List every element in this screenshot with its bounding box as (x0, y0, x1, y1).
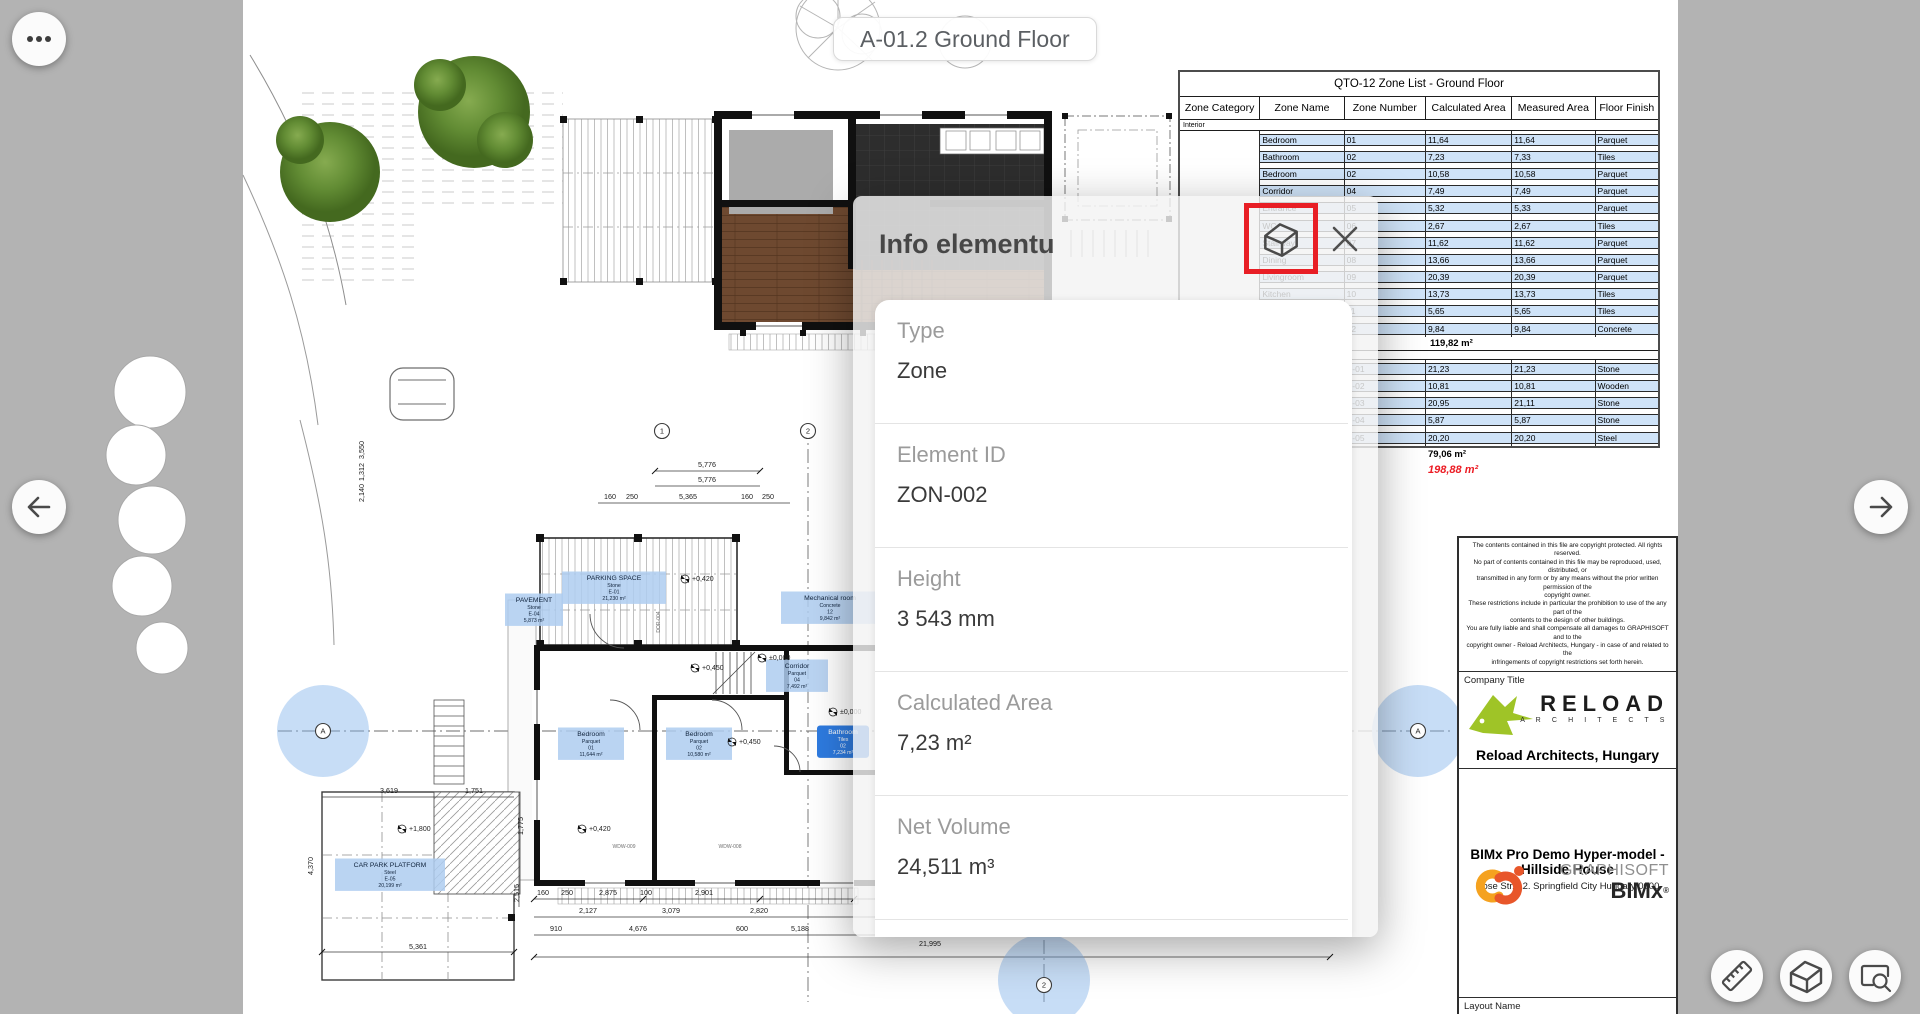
svg-text:5,873 m²: 5,873 m² (524, 618, 545, 624)
svg-text:5,361: 5,361 (409, 942, 427, 951)
svg-text:5,365: 5,365 (679, 492, 697, 501)
screen-search-icon (1853, 954, 1897, 998)
property-label: Element ID (897, 424, 1348, 468)
svg-text:3,079: 3,079 (662, 906, 680, 915)
svg-text:Parquet: Parquet (788, 671, 807, 677)
svg-text:21,230 m²: 21,230 m² (602, 596, 626, 602)
svg-text:160: 160 (537, 888, 549, 897)
info-property-row: Element IDZON-002 (875, 424, 1348, 548)
company-name: Reload Architects, Hungary (1459, 747, 1676, 763)
info-property-row: Height3 543 mm (875, 548, 1348, 672)
svg-text:Parquet: Parquet (582, 739, 601, 745)
svg-text:160: 160 (604, 492, 616, 501)
grid-marker: A (1411, 724, 1426, 739)
grid-marker: 1 (655, 424, 670, 439)
qto-column-header: Measured Area (1511, 97, 1594, 119)
zone-stamp[interactable]: PARKING SPACEStoneE-0121,230 m² (562, 572, 666, 604)
svg-text:2,875: 2,875 (599, 888, 617, 897)
reload-logo-wordmark: RELOAD (1520, 693, 1669, 715)
zone-stamp[interactable]: BedroomParquet0210,580 m² (666, 728, 732, 760)
svg-text:1,751: 1,751 (465, 786, 483, 795)
svg-text:Parquet: Parquet (690, 739, 709, 745)
svg-text:2,127: 2,127 (579, 906, 597, 915)
svg-text:02: 02 (696, 746, 702, 752)
title-block: The contents contained in this file are … (1457, 536, 1678, 1014)
ellipsis-icon (17, 17, 61, 61)
svg-text:A: A (320, 727, 325, 736)
svg-text:250: 250 (626, 492, 638, 501)
svg-text:04: 04 (794, 678, 800, 684)
layout-name-label: Layout Name (1459, 998, 1676, 1012)
svg-text:3,619: 3,619 (380, 786, 398, 795)
svg-text:Stone: Stone (607, 583, 621, 589)
property-label: Height (897, 548, 1348, 592)
svg-text:E-05: E-05 (385, 877, 396, 883)
zone-stamp[interactable]: CAR PARK PLATFORMSteelE-0520,199 m² (335, 859, 445, 891)
open-3d-model-button[interactable] (1780, 950, 1832, 1002)
svg-text:+0,450: +0,450 (739, 739, 761, 746)
measure-tool-button[interactable] (1711, 950, 1763, 1002)
close-icon (1328, 222, 1362, 256)
zone-stamp[interactable]: CorridorParquet047,492 m² (766, 660, 828, 692)
svg-text:+0,450: +0,450 (702, 665, 724, 672)
qto-section-interior: Interior (1180, 120, 1658, 131)
previous-layout-button[interactable] (12, 480, 66, 534)
svg-text:7,492 m²: 7,492 m² (787, 684, 808, 690)
layout-title-text: A-01.2 Ground Floor (860, 26, 1070, 53)
svg-text:11,644 m²: 11,644 m² (580, 752, 603, 758)
qto-table-row: Bedroom0210,5810,58Parquet (1180, 165, 1658, 182)
property-value: 7,23 m² (897, 730, 1348, 756)
svg-text:DOR-004: DOR-004 (656, 611, 662, 632)
element-info-header: Info elementu (853, 196, 1378, 300)
bimx-viewer: PARKING SPACEStoneE-0121,230 m²Mechanica… (0, 0, 1920, 1014)
qto-table-row: Bedroom0111,6411,64Parquet (1180, 131, 1658, 148)
svg-text:910: 910 (550, 924, 562, 933)
property-value: 3 543 mm (897, 606, 1348, 632)
copyright-notice: The contents contained in this file are … (1459, 538, 1676, 671)
svg-text:250: 250 (561, 888, 573, 897)
grid-marker: 2 (801, 424, 816, 439)
svg-text:7,234 m²: 7,234 m² (833, 750, 854, 756)
panel-title: Info elementu (879, 229, 1055, 260)
qto-column-header: Floor Finish (1595, 97, 1658, 119)
next-layout-button[interactable] (1854, 480, 1908, 534)
svg-text:Bedroom: Bedroom (577, 731, 605, 738)
svg-text:Mechanical room: Mechanical room (804, 595, 856, 602)
svg-text:CAR PARK PLATFORM: CAR PARK PLATFORM (354, 862, 427, 869)
grid-marker: 2 (1037, 978, 1052, 993)
qto-column-header: Calculated Area (1425, 97, 1511, 119)
svg-text:A: A (1415, 727, 1420, 736)
svg-text:1,775: 1,775 (516, 817, 525, 835)
svg-text:2,515: 2,515 (512, 884, 521, 902)
property-label: Net Volume (897, 796, 1348, 840)
qto-column-header: Zone Name (1259, 97, 1343, 119)
house-3d-icon (1784, 954, 1828, 998)
element-info-card: TypeZoneElement IDZON-002Height3 543 mmC… (875, 300, 1352, 937)
svg-text:01: 01 (588, 746, 594, 752)
svg-text:160: 160 (741, 492, 753, 501)
menu-button[interactable] (12, 12, 66, 66)
element-info-panel: Info elementu TypeZoneElement IDZON-002H… (853, 196, 1378, 937)
arrow-right-icon (1859, 485, 1903, 529)
svg-text:Stone: Stone (527, 605, 541, 611)
reload-logo-subtext: A R C H I T E C T S (1520, 717, 1669, 724)
svg-text:4,676: 4,676 (629, 924, 647, 933)
svg-text:+0,420: +0,420 (589, 826, 611, 833)
svg-text:250: 250 (762, 492, 774, 501)
svg-text:PAVEMENT: PAVEMENT (516, 597, 552, 604)
svg-text:Corridor: Corridor (785, 663, 810, 670)
svg-text:WDW-009: WDW-009 (613, 844, 636, 850)
svg-text:02: 02 (840, 744, 846, 750)
info-property-row: Net Volume24,511 m³ (875, 796, 1348, 920)
svg-text:2,901: 2,901 (695, 888, 713, 897)
property-label: Type (897, 300, 1348, 344)
svg-text:Concrete: Concrete (819, 603, 840, 609)
house-3d-icon (1258, 216, 1304, 262)
svg-text:2: 2 (1042, 981, 1046, 990)
qto-table-row: Bathroom027,237,33Tiles (1180, 148, 1658, 165)
svg-text:100: 100 (640, 888, 652, 897)
layout-title-pill[interactable]: A-01.2 Ground Floor (833, 17, 1097, 61)
find-on-layout-button[interactable] (1849, 950, 1901, 1002)
info-property-row: Calculated Area7,23 m² (875, 672, 1348, 796)
zone-stamp[interactable]: PAVEMENTStoneE-045,873 m² (505, 594, 563, 626)
svg-text:1: 1 (660, 427, 664, 436)
qto-column-header: Zone Category (1180, 97, 1259, 119)
svg-text:2,140: 2,140 (357, 484, 366, 502)
zone-stamp[interactable]: BedroomParquet0111,644 m² (558, 728, 624, 760)
qto-column-header: Zone Number (1344, 97, 1425, 119)
svg-text:20,199 m²: 20,199 m² (378, 883, 402, 889)
property-value: ZON-002 (897, 482, 1348, 508)
svg-text:1,312: 1,312 (357, 463, 366, 481)
svg-text:10,580 m²: 10,580 m² (687, 752, 711, 758)
grid-marker: A (316, 724, 331, 739)
svg-text:+1,800: +1,800 (409, 826, 431, 833)
svg-text:2: 2 (806, 427, 810, 436)
svg-text:2,820: 2,820 (750, 906, 768, 915)
property-value: 24,511 m³ (897, 854, 1348, 880)
svg-text:E-01: E-01 (609, 590, 620, 596)
bimx-logo-icon (1469, 860, 1531, 916)
qto-table-title: QTO-12 Zone List - Ground Floor (1180, 72, 1658, 97)
arrow-left-icon (17, 485, 61, 529)
svg-text:+0,420: +0,420 (692, 576, 714, 583)
svg-text:±0,000: ±0,000 (769, 655, 790, 662)
svg-text:Bedroom: Bedroom (685, 731, 713, 738)
svg-text:4,370: 4,370 (306, 857, 315, 875)
svg-text:5,188: 5,188 (791, 924, 809, 933)
close-panel-button[interactable] (1326, 220, 1364, 258)
svg-text:21,995: 21,995 (919, 939, 941, 948)
svg-text:E-04: E-04 (529, 612, 540, 618)
property-label: Calculated Area (897, 672, 1348, 716)
svg-text:9,842 m²: 9,842 m² (820, 616, 841, 622)
bimx-wordmark: BIMx® (1560, 880, 1669, 902)
svg-text:Tiles: Tiles (838, 737, 849, 743)
ruler-icon (1715, 954, 1759, 998)
company-title-label: Company Title (1459, 672, 1676, 686)
svg-text:Steel: Steel (384, 870, 396, 876)
svg-text:PARKING SPACE: PARKING SPACE (587, 575, 642, 582)
property-value: Zone (897, 358, 1348, 384)
qto-table-header: Zone CategoryZone NameZone NumberCalcula… (1180, 97, 1658, 120)
show-in-model-button[interactable] (1244, 203, 1318, 274)
svg-text:5,776: 5,776 (698, 475, 716, 484)
svg-text:3,550: 3,550 (357, 441, 366, 459)
svg-text:5,776: 5,776 (698, 460, 716, 469)
svg-text:12: 12 (827, 610, 833, 616)
info-property-row: TypeZone (875, 300, 1348, 424)
svg-text:600: 600 (736, 924, 748, 933)
svg-text:WDW-008: WDW-008 (719, 844, 742, 850)
